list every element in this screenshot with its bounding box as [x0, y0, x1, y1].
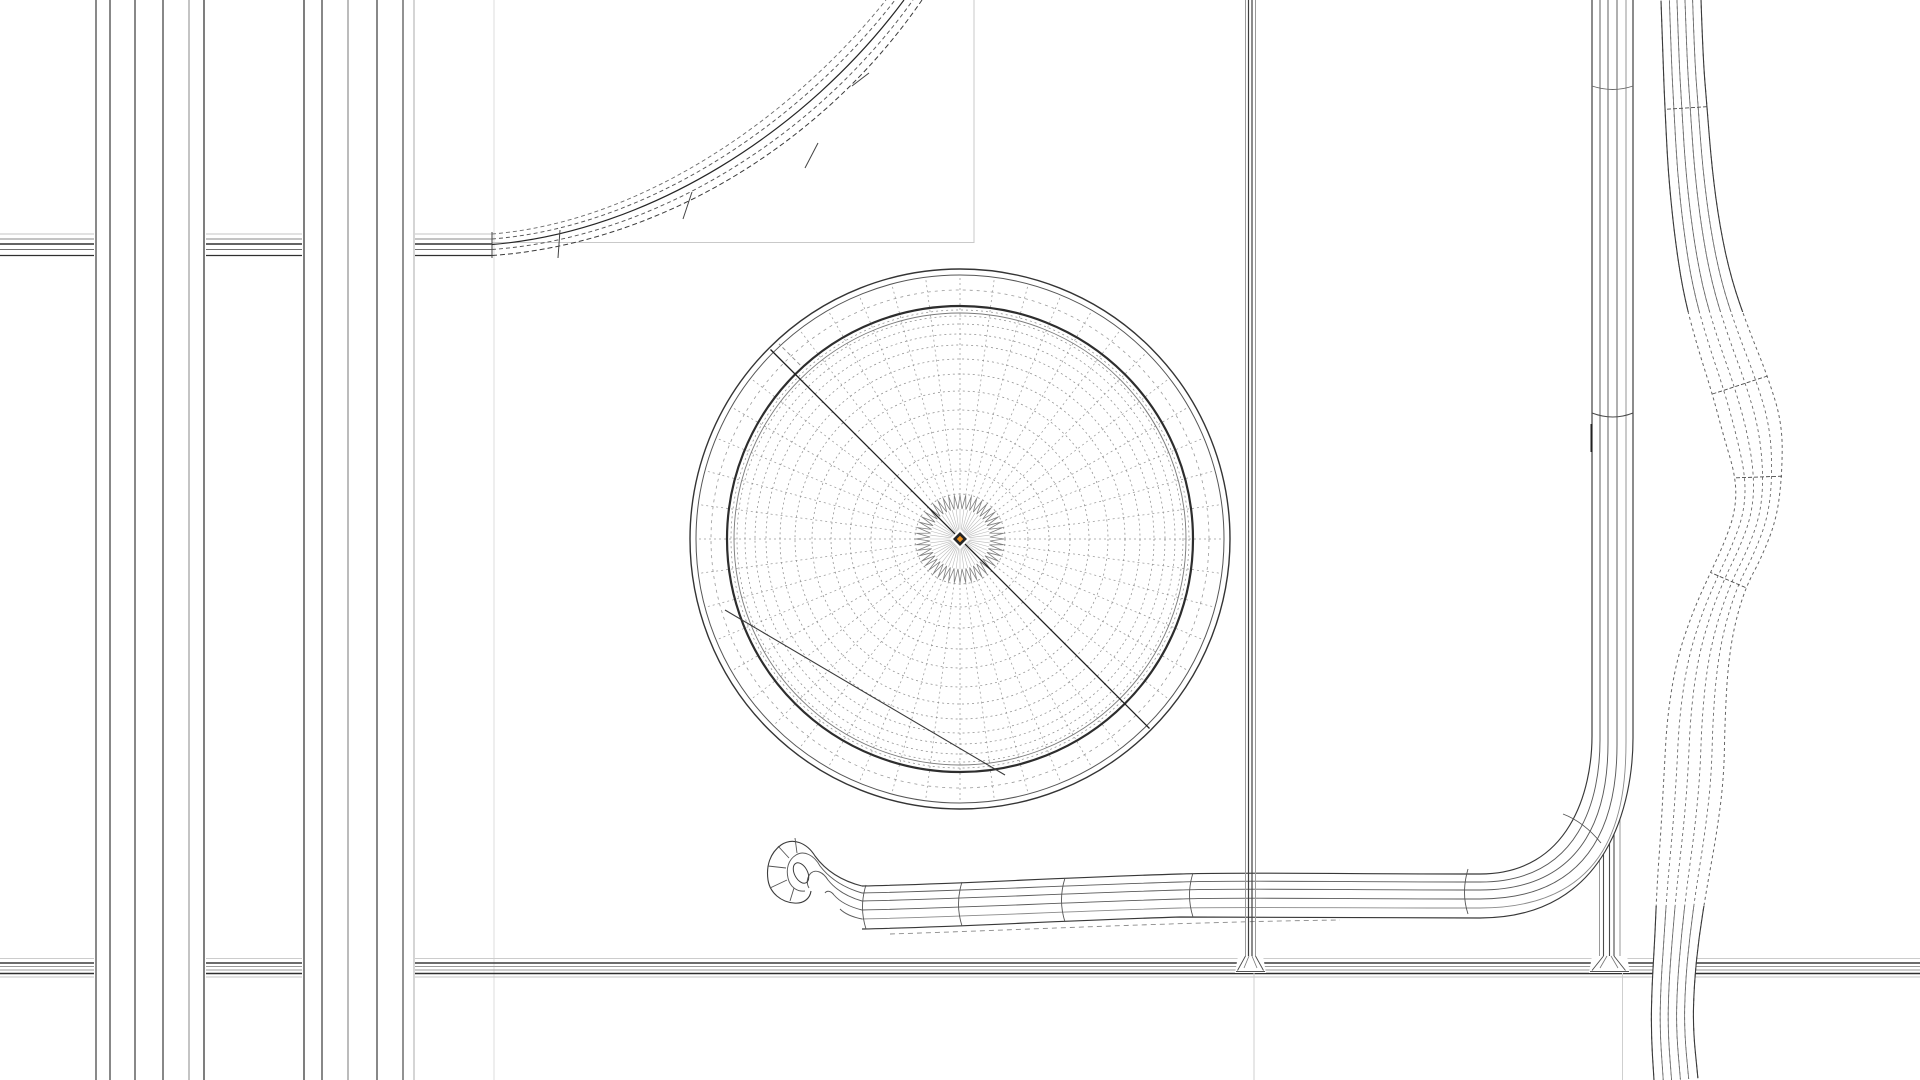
pipe-hook[interactable] — [768, 838, 862, 919]
wavy-tube[interactable] — [1651, 0, 1782, 1080]
top-curved-pipe[interactable] — [492, 0, 922, 258]
wireframe-viewport — [0, 0, 1920, 1080]
column-group-2[interactable] — [302, 0, 415, 1080]
mullion-center[interactable] — [1235, 0, 1266, 1080]
column-group-1[interactable] — [94, 0, 206, 1080]
elbow-pipe[interactable] — [862, 0, 1633, 934]
viewport-canvas[interactable] — [0, 0, 1920, 1080]
wireframe-disc[interactable] — [690, 269, 1230, 809]
bottom-sill-band[interactable] — [0, 959, 1920, 978]
top-sill-pipe-straight[interactable] — [0, 232, 492, 258]
